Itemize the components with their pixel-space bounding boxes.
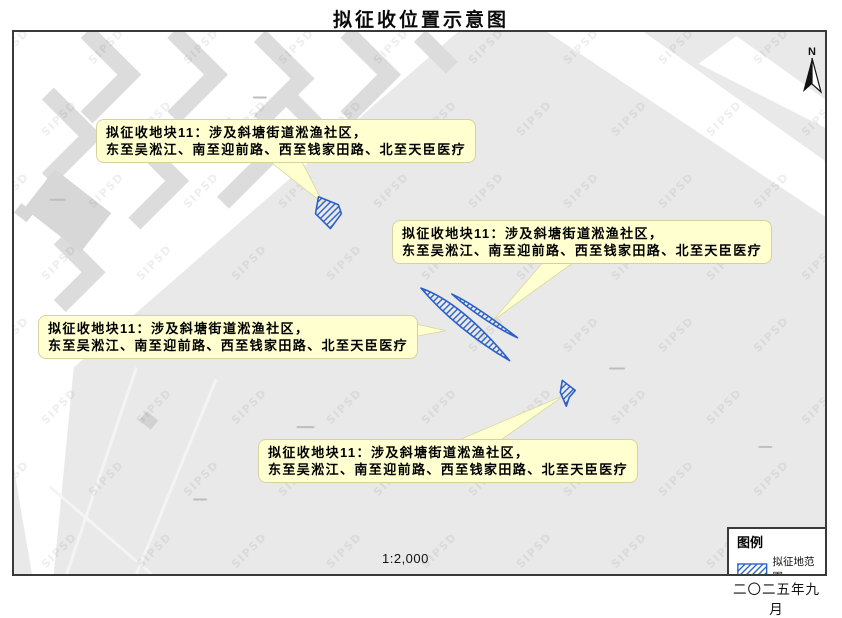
legend: 图例 拟征地范围 <box>727 527 825 574</box>
scale-text: 1:2,000 <box>382 551 429 566</box>
page-title: 拟征收位置示意图 <box>0 5 842 32</box>
callout-line1: 拟征收地块11：涉及斜塘街道淞渔社区， <box>48 320 408 337</box>
parcel-area-4 <box>560 380 575 406</box>
callout-leaders <box>267 159 579 443</box>
annotation-overlay <box>14 32 825 574</box>
callout-line2: 东至吴淞江、南至迎前路、西至钱家田路、北至天臣医疗 <box>268 461 628 478</box>
callout-plot11-4: 拟征收地块11：涉及斜塘街道淞渔社区， 东至吴淞江、南至迎前路、西至钱家田路、北… <box>258 439 638 483</box>
callout-line1: 拟征收地块11：涉及斜塘街道淞渔社区， <box>268 444 628 461</box>
callout-line2: 东至吴淞江、南至迎前路、西至钱家田路、北至天臣医疗 <box>106 141 466 158</box>
north-label: N <box>808 46 816 58</box>
north-arrow-icon: N <box>795 44 827 96</box>
legend-swatch-hatch-icon <box>737 562 768 577</box>
callout-leader-1 <box>267 159 324 204</box>
callout-line1: 拟征收地块11：涉及斜塘街道淞渔社区， <box>402 225 762 242</box>
parcel-area-1 <box>316 197 342 229</box>
map-frame: SIPSDSIPSDSIPSDSIPSDSIPSDSIPSDSIPSDSIPSD… <box>12 30 827 576</box>
callout-plot11-3: 拟征收地块11：涉及斜塘街道淞渔社区， 东至吴淞江、南至迎前路、西至钱家田路、北… <box>38 315 418 359</box>
callout-leader-2 <box>493 258 580 321</box>
legend-item-label: 拟征地范围 <box>773 554 817 576</box>
callout-leader-4 <box>452 395 564 443</box>
callout-plot11-1: 拟征收地块11：涉及斜塘街道淞渔社区， 东至吴淞江、南至迎前路、西至钱家田路、北… <box>96 119 476 163</box>
callout-line1: 拟征收地块11：涉及斜塘街道淞渔社区， <box>106 124 466 141</box>
legend-title: 图例 <box>737 532 817 551</box>
map-date: 二〇二五年九月 <box>726 578 827 618</box>
callout-line2: 东至吴淞江、南至迎前路、西至钱家田路、北至天臣医疗 <box>402 242 762 259</box>
legend-item: 拟征地范围 <box>737 554 817 576</box>
callout-line2: 东至吴淞江、南至迎前路、西至钱家田路、北至天臣医疗 <box>48 337 408 354</box>
callout-plot11-2: 拟征收地块11：涉及斜塘街道淞渔社区， 东至吴淞江、南至迎前路、西至钱家田路、北… <box>392 220 772 264</box>
